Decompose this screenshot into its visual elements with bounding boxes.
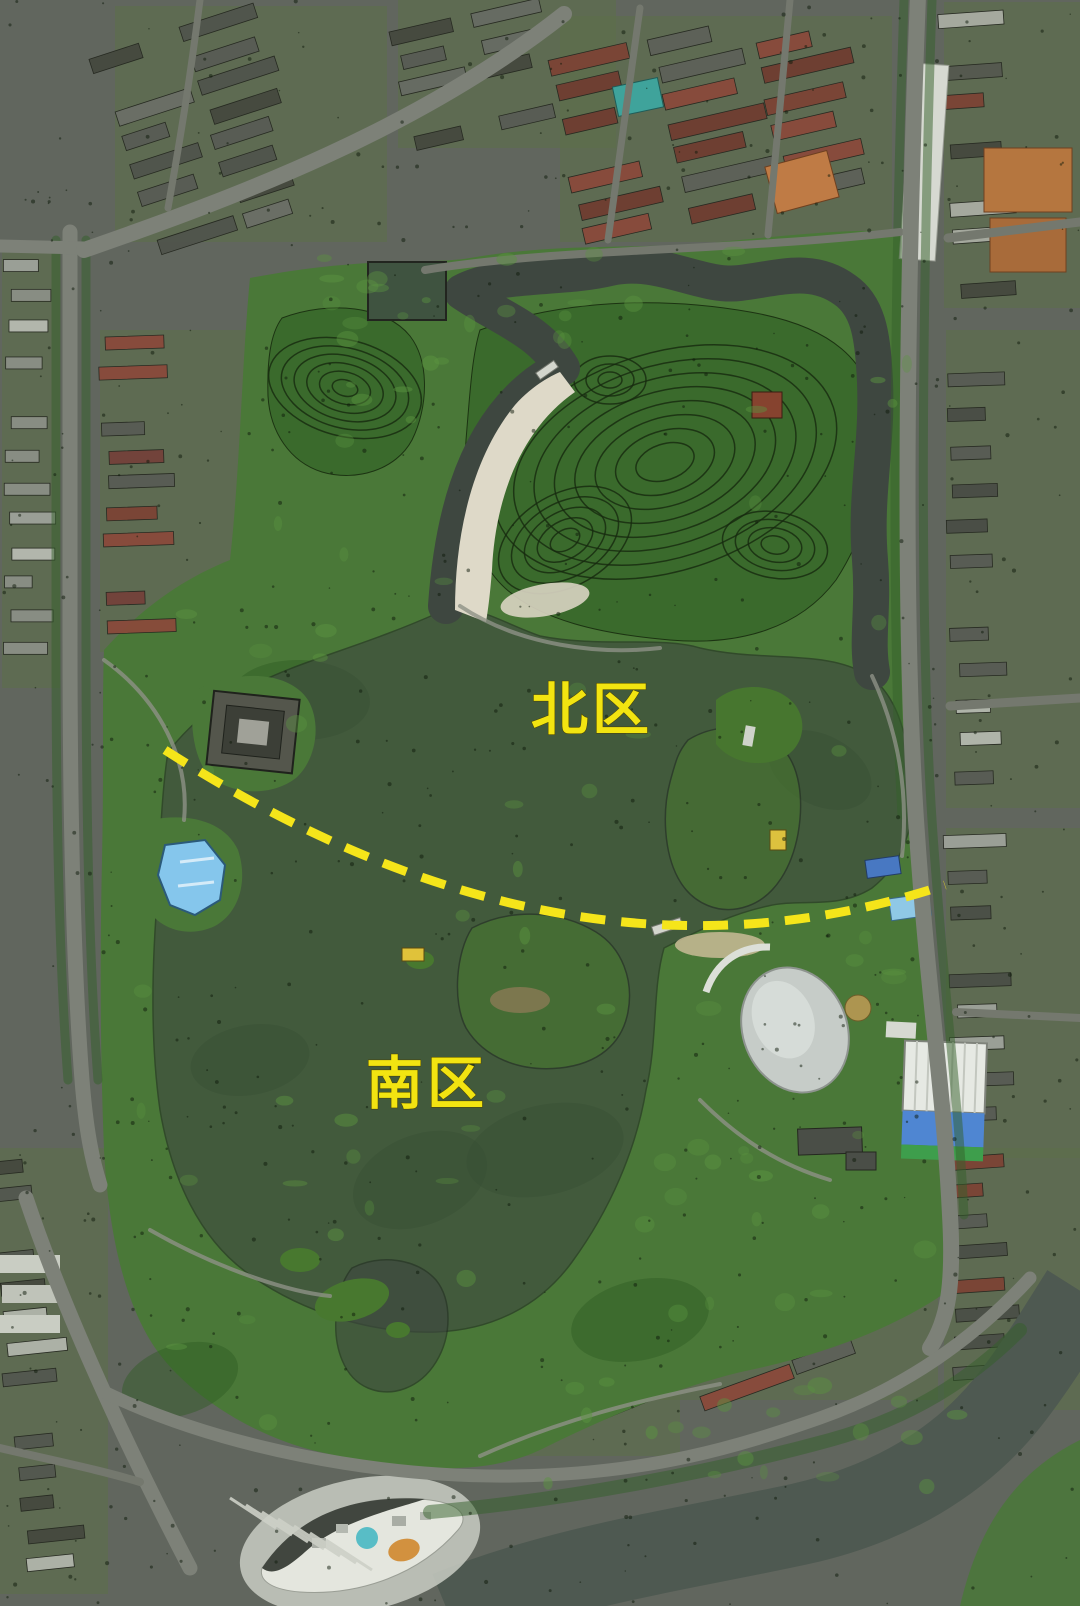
island-soil-patch — [490, 987, 550, 1013]
satellite-map: 北区 南区 — [0, 0, 1080, 1606]
east-orange-block-a — [984, 148, 1072, 212]
crescent-pond — [356, 1527, 378, 1549]
map-canvas: 北区 南区 — [0, 0, 1080, 1606]
north-zone-label: 北区 — [531, 678, 653, 742]
center-island — [457, 914, 629, 1068]
hill-pavilion — [752, 392, 782, 418]
pier-building-b — [2, 1285, 58, 1303]
west-stub-road — [0, 246, 84, 248]
service-building-a — [798, 1127, 863, 1155]
south-zone-label: 南区 — [366, 1052, 488, 1116]
sand-patch-shore — [675, 932, 765, 958]
temple-complex — [206, 691, 299, 774]
pier-building-c — [0, 1315, 60, 1333]
pond-islet — [386, 1322, 410, 1338]
yellow-boat — [402, 948, 424, 961]
gold-dome — [845, 995, 871, 1021]
south-islet-b — [280, 1248, 320, 1272]
white-annex — [886, 1021, 917, 1039]
service-building-b — [846, 1152, 876, 1170]
